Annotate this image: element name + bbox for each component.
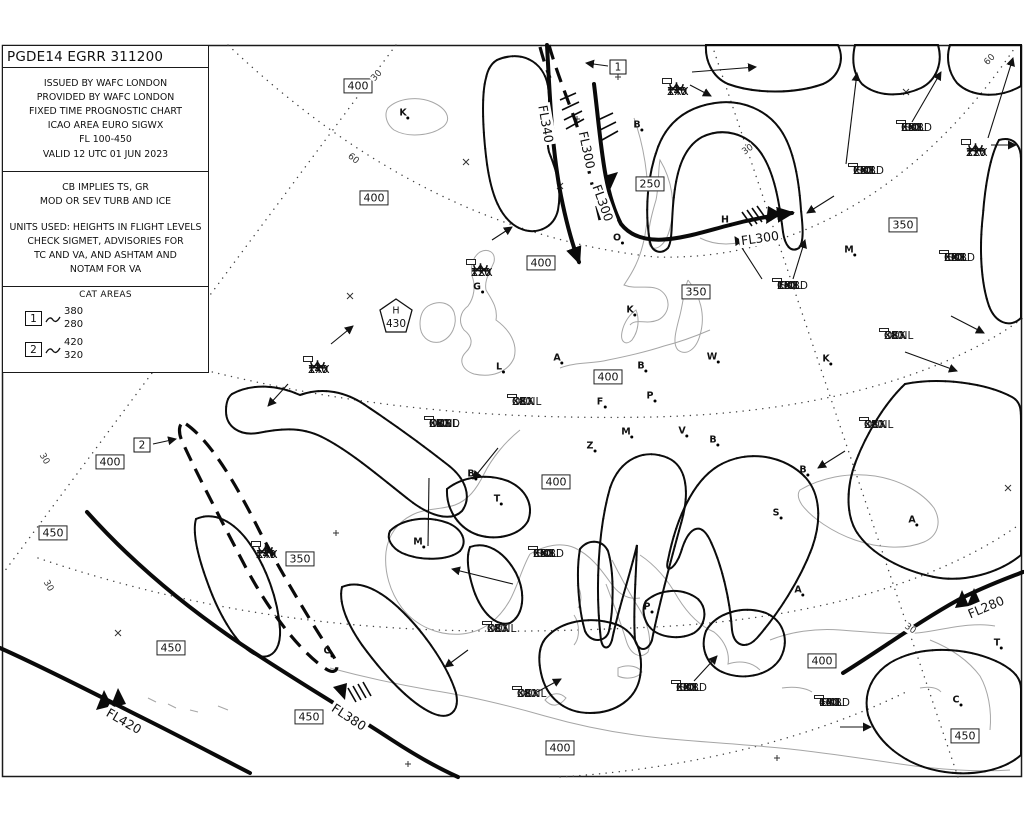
city-letter: W — [707, 352, 717, 363]
cb-info-box: ISOLEMBDCB320XXX — [939, 250, 949, 254]
flight-level-box: 400 — [808, 653, 837, 668]
cat-top: 380 — [64, 306, 83, 319]
cb-info-line: XXX — [512, 396, 534, 408]
city-dot — [653, 400, 656, 403]
note-line: CHECK SIGMET, ADVISORIES FOR — [5, 235, 206, 249]
cb-info-line: XXX — [884, 330, 906, 342]
city-marker: K — [399, 108, 406, 119]
note-line: TC AND VA, AND ASHTAM AND — [5, 249, 206, 263]
turb-ice-box: 140XXX140XXX — [303, 356, 313, 362]
city-marker: T — [494, 494, 500, 505]
note-line: UNITS USED: HEIGHTS IN FLIGHT LEVELS — [5, 221, 206, 235]
city-letter: P — [647, 391, 654, 402]
city-marker: W — [707, 352, 717, 363]
city-dot — [650, 611, 653, 614]
cb-info-box: OCNLCB380XXX — [482, 621, 492, 625]
jet-fl280 — [843, 572, 1023, 673]
cat-area-levels: 420 320 — [64, 337, 83, 362]
city-marker: B — [637, 361, 644, 372]
city-marker: A — [794, 585, 801, 596]
cb-info-box: OCNLCB380XXX — [512, 686, 522, 690]
city-letter: S — [773, 508, 780, 519]
cat-areas-label: CAT AREAS — [3, 290, 208, 300]
flight-level-box: 350 — [889, 217, 918, 232]
cat-top: 420 — [64, 337, 83, 350]
city-letter: A — [553, 353, 560, 364]
cb-info-box: OCNLCB380XXX — [507, 394, 517, 398]
city-marker: A — [908, 515, 915, 526]
city-marker: K — [626, 305, 633, 316]
cat-squiggle-icon — [45, 312, 61, 326]
city-letter: O — [613, 233, 621, 244]
info-line: FL 100-450 — [5, 133, 206, 147]
flight-level-box: 450 — [157, 640, 186, 655]
info-line: FIXED TIME PROGNOSTIC CHART — [5, 105, 206, 119]
cb-info-line: XXX — [944, 252, 966, 264]
hazard-row: 140XXX — [667, 81, 686, 93]
flight-level-box: 400 — [546, 740, 575, 755]
cb-info-line: XXX — [429, 418, 451, 430]
city-dot — [959, 704, 962, 707]
city-marker: B — [467, 469, 474, 480]
chart-legend: PGDE14 EGRR 311200 ISSUED BY WAFC LONDON… — [2, 45, 209, 373]
cat-area-id: 1 — [25, 311, 42, 326]
turb-ice-box: 120XXX120XXX — [466, 259, 476, 265]
city-dot — [729, 224, 732, 227]
city-letter: Z — [587, 441, 594, 452]
flight-level-box: 450 — [39, 525, 68, 540]
cb-info-line: XXX — [533, 548, 555, 560]
city-marker: L — [496, 362, 502, 373]
city-letter: A — [794, 585, 801, 596]
city-marker: M — [621, 427, 630, 438]
cb-info-box: ISOLEMBDCB180XXX — [772, 278, 782, 282]
city-letter: A — [908, 515, 915, 526]
cat-areas-legend: CAT AREAS 1 380 280 2 420 320 — [3, 287, 208, 372]
city-letter: P — [644, 602, 651, 613]
city-marker: O — [613, 233, 621, 244]
chart-notes-block: CB IMPLIES TS, GR MOD OR SEV TURB AND IC… — [3, 172, 208, 288]
city-marker: Z — [587, 441, 594, 452]
hazard-row: 220110 — [966, 142, 985, 154]
city-letter: B — [467, 469, 474, 480]
city-letter: V — [678, 426, 685, 437]
city-marker: C — [324, 646, 331, 657]
flight-level-box: 450 — [951, 728, 980, 743]
city-marker: G — [473, 282, 481, 293]
cb-info-box: ISOLEMBDCB350XXX — [896, 120, 906, 124]
city-dot — [779, 517, 782, 520]
cb-info-line: XXX — [777, 280, 799, 292]
flight-level-box: 400 — [360, 190, 389, 205]
info-line: ICAO AREA EURO SIGWX — [5, 119, 206, 133]
chart-title: PGDE14 EGRR 311200 — [3, 46, 208, 68]
info-line: VALID 12 UTC 01 JUN 2023 — [5, 148, 206, 162]
cat-base: 280 — [64, 319, 83, 332]
flight-level-box: 400 — [344, 78, 373, 93]
cb-info-box: OCNLCB380XXX — [859, 417, 869, 421]
city-marker: V — [678, 426, 685, 437]
cb-info-line: XXX — [487, 623, 509, 635]
jet-fl340 — [547, 45, 579, 262]
cb-info-box: ISOLEMBDCB350XXX — [528, 546, 538, 550]
cat-area-row: 2 420 320 — [25, 337, 208, 362]
cb-info-box: OCNLEMBDCB380XXX — [424, 416, 434, 420]
city-dot — [330, 655, 333, 658]
cat-area-row: 1 380 280 — [25, 306, 208, 331]
city-marker: F — [597, 397, 604, 408]
cat-squiggle-icon — [45, 343, 61, 357]
cb-info-box: ISOLEMBDCB400140 — [814, 695, 824, 699]
city-letter: M — [844, 245, 853, 256]
city-letter: B — [637, 361, 644, 372]
jet-fl420 — [0, 648, 250, 773]
city-marker: A — [553, 353, 560, 364]
cat-area-marker: 1 — [610, 60, 627, 75]
cb-info-box: ISOLEMBDCB250XXX — [848, 163, 858, 167]
cat-area-boundaries — [179, 45, 600, 671]
city-marker: P — [644, 602, 651, 613]
city-letter: C — [953, 695, 960, 706]
city-marker: B — [799, 465, 806, 476]
cb-info-line: XXX — [676, 682, 698, 694]
city-marker: P — [647, 391, 654, 402]
flight-level-box: 400 — [527, 255, 556, 270]
city-letter: M — [621, 427, 630, 438]
flight-level-box: 350 — [286, 551, 315, 566]
flight-level-box: 400 — [542, 474, 571, 489]
turb-ice-box: 140XXX140XXX — [662, 78, 672, 84]
cb-info-line: XXX — [901, 122, 923, 134]
flight-level-box: 250 — [636, 176, 665, 191]
cb-info-line: XXX — [864, 419, 886, 431]
jet-fl300 — [594, 84, 792, 240]
cb-info-line: XXX — [517, 688, 539, 700]
cloud-areas — [195, 45, 1021, 773]
city-letter: F — [597, 397, 604, 408]
flight-level-box: 450 — [295, 709, 324, 724]
note-line: NOTAM FOR VA — [5, 263, 206, 277]
note-line: CB IMPLIES TS, GR — [5, 181, 206, 195]
chart-info-block: ISSUED BY WAFC LONDON PROVIDED BY WAFC L… — [3, 68, 208, 172]
city-letter: C — [324, 646, 331, 657]
city-dot — [593, 450, 596, 453]
city-letter: M — [413, 537, 422, 548]
cb-info-box: ISOLEMBDCB320XXX — [671, 680, 681, 684]
city-marker: M — [844, 245, 853, 256]
cb-info-line: XXX — [853, 165, 875, 177]
city-letter: B — [633, 120, 640, 131]
cb-info-line: 140 — [819, 697, 839, 709]
city-letter: B — [709, 435, 716, 446]
city-letter: G — [473, 282, 481, 293]
hazard-row: 120XXX — [471, 262, 490, 274]
info-line: PROVIDED BY WAFC LONDON — [5, 91, 206, 105]
city-marker: T — [994, 638, 1000, 649]
tropopause-high-value: 430 — [386, 318, 406, 330]
info-line: ISSUED BY WAFC LONDON — [5, 77, 206, 91]
city-marker: B — [709, 435, 716, 446]
city-marker: K — [822, 354, 829, 365]
sigwx-chart: PGDE14 EGRR 311200 ISSUED BY WAFC LONDON… — [0, 0, 1024, 821]
city-marker: S — [773, 508, 780, 519]
city-letter: H — [721, 215, 729, 226]
city-marker: C — [953, 695, 960, 706]
cat-area-levels: 380 280 — [64, 306, 83, 331]
tropopause-high-label: H — [392, 306, 399, 317]
cat-base: 320 — [64, 350, 83, 363]
flight-level-box: 400 — [594, 369, 623, 384]
city-dot — [603, 406, 606, 409]
note-line: MOD OR SEV TURB AND ICE — [5, 195, 206, 209]
city-marker: B — [633, 120, 640, 131]
city-letter: K — [399, 108, 406, 119]
hazard-row: 140XXX — [256, 544, 275, 556]
city-letter: K — [626, 305, 633, 316]
cat-area-marker: 2 — [134, 438, 151, 453]
turb-ice-box: 140XXX140XXX — [251, 541, 261, 547]
city-dot — [481, 291, 484, 294]
flight-level-box: 350 — [682, 284, 711, 299]
flight-level-box: 400 — [96, 454, 125, 469]
city-marker: M — [413, 537, 422, 548]
cat-area-id: 2 — [25, 342, 42, 357]
hazard-row: 140XXX — [308, 359, 327, 371]
cb-info-box: OCNLCB380XXX — [879, 328, 889, 332]
turb-ice-box: 220XXX220110 — [961, 139, 971, 145]
city-marker: H — [721, 215, 729, 226]
city-letter: B — [799, 465, 806, 476]
city-letter: K — [822, 354, 829, 365]
